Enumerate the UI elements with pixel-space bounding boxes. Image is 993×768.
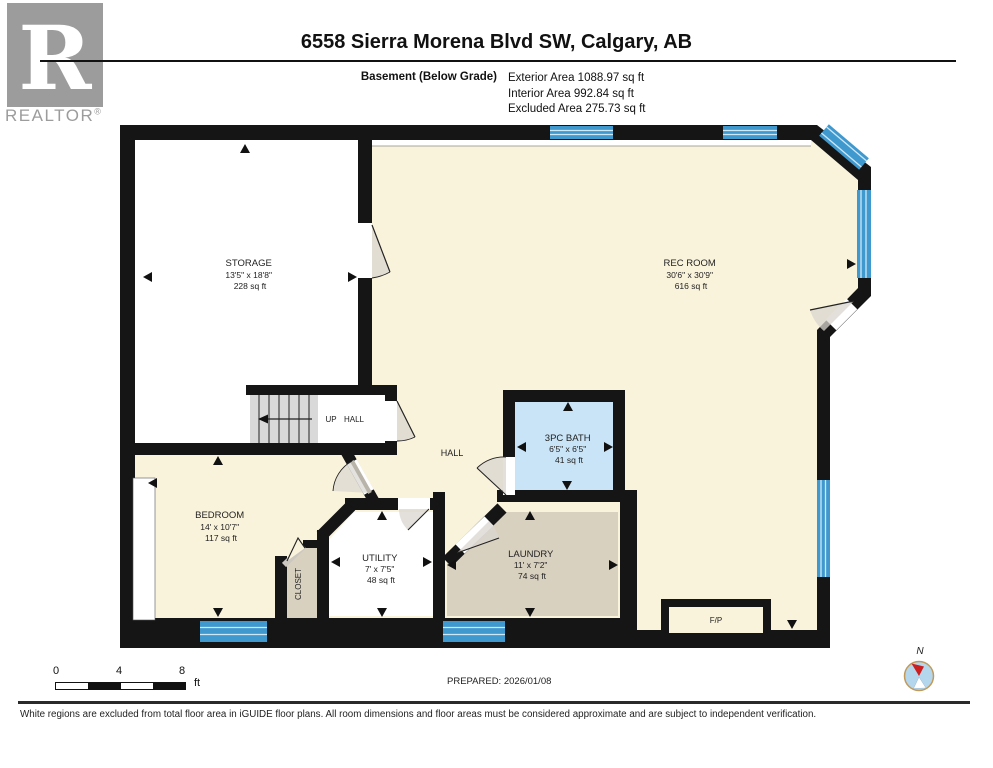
stair-hall-label: HALL bbox=[344, 415, 365, 424]
hall-label: HALL bbox=[441, 448, 464, 458]
scale-unit: ft bbox=[194, 677, 200, 689]
up-label: UP bbox=[325, 415, 336, 424]
page: R REALTOR® 6558 Sierra Morena Blvd SW, C… bbox=[0, 0, 993, 768]
compass-north-label: N bbox=[916, 646, 924, 657]
laundry-right-wall bbox=[620, 492, 637, 648]
scale-bar: 0 4 8 ft bbox=[55, 665, 275, 695]
closet-top-stub bbox=[303, 540, 319, 548]
compass-icon: N bbox=[896, 644, 942, 696]
left-wall-inset bbox=[133, 478, 155, 620]
stair-hall-door-gap bbox=[385, 401, 397, 441]
closet-label: CLOSET bbox=[294, 568, 303, 600]
scale-tick-8: 8 bbox=[179, 665, 185, 677]
disclaimer-text: White regions are excluded from total fl… bbox=[20, 709, 816, 720]
prepared-date: PREPARED: 2026/01/08 bbox=[447, 676, 551, 687]
utility-door-gap bbox=[398, 498, 430, 510]
scale-tick-4: 4 bbox=[116, 665, 122, 677]
footer-rule bbox=[18, 701, 970, 704]
scale-bar-segments bbox=[55, 682, 186, 690]
wall-offset-strip bbox=[372, 140, 811, 146]
scale-tick-0: 0 bbox=[53, 665, 59, 677]
utility-right-wall bbox=[433, 492, 445, 618]
stairs-top-wall bbox=[246, 385, 397, 395]
room-label-utility: UTILITY 7' x 7'5" 48 sq ft bbox=[362, 553, 400, 585]
bedroom-top-wall bbox=[120, 443, 397, 455]
fireplace-label: F/P bbox=[710, 616, 722, 625]
storage-door-gap bbox=[358, 223, 372, 278]
floor-plan-svg: STORAGE 13'5" x 18'8" 228 sq ft REC ROOM… bbox=[0, 0, 993, 768]
